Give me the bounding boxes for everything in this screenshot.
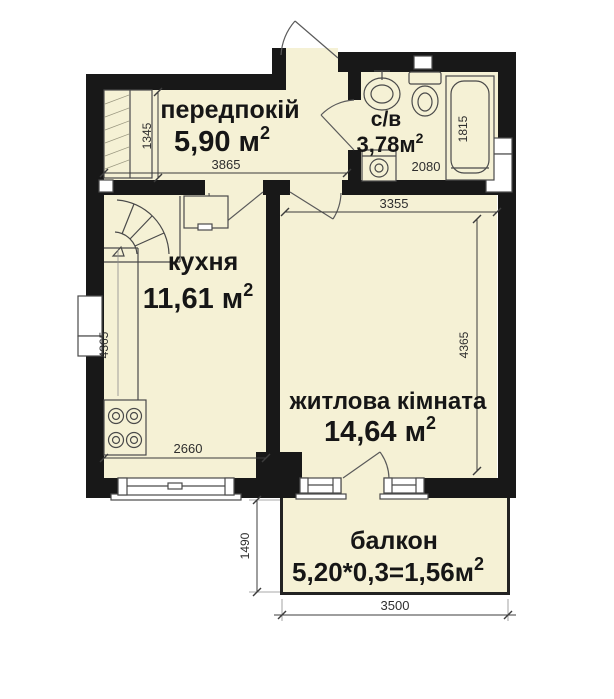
closet-depth-dim: 1345 xyxy=(140,122,154,149)
bathroom-width-dim: 2080 xyxy=(412,159,441,174)
wall-bottom-middle xyxy=(232,478,302,498)
wall-entry-bump xyxy=(272,48,286,90)
kitchen-width-dim: 2660 xyxy=(174,441,203,456)
balcony-depth-dim: 1490 xyxy=(238,532,252,559)
balcony-label: балкон xyxy=(350,527,438,555)
bathroom-area: 3,78м2 xyxy=(357,130,424,157)
kitchen-door-opening xyxy=(205,180,263,195)
vent-marker-top xyxy=(414,56,432,69)
hallway-area: 5,90 м2 xyxy=(174,123,270,158)
wall-bathroom-left-upper xyxy=(348,72,361,100)
wall-interior-c xyxy=(342,180,498,195)
entry-door-opening xyxy=(286,48,338,64)
floor-plan: передпокій 5,90 м2 3865 1345 с/в 3,78м2 … xyxy=(0,0,614,699)
duct-left-upper xyxy=(78,296,102,336)
bathroom-depth-dim: 1815 xyxy=(456,115,470,142)
wall-left xyxy=(86,74,104,498)
wall-marker-left xyxy=(99,180,113,192)
living-window-right xyxy=(380,478,428,499)
kitchen-area: 11,61 м2 xyxy=(143,280,254,315)
wall-divider-kitchen-living xyxy=(266,180,280,455)
wall-right xyxy=(498,52,516,498)
balcony-wall-left xyxy=(280,498,283,595)
bathtub xyxy=(446,76,494,180)
living-width-dim: 3355 xyxy=(380,196,409,211)
wall-bottom-right xyxy=(424,478,516,498)
hallway-width-dim: 3865 xyxy=(212,157,241,172)
balcony-wall-right xyxy=(507,498,510,595)
balcony-door-opening xyxy=(341,478,384,498)
living-door-opening xyxy=(290,180,342,195)
stove xyxy=(104,400,146,455)
living-window-left xyxy=(296,478,346,499)
living-height-dim: 4365 xyxy=(457,331,471,358)
wall-top-left xyxy=(86,74,286,90)
living-room-area: 14,64 м2 xyxy=(324,413,436,448)
kitchen-window xyxy=(111,478,241,500)
dim-balcony-depth xyxy=(249,496,280,596)
kitchen-height-dim: 4365 xyxy=(97,331,111,358)
kitchen-label: кухня xyxy=(168,248,238,276)
balcony-width-dim: 3500 xyxy=(381,598,410,613)
kitchen-sink-unit xyxy=(184,196,228,230)
balcony-wall-bottom xyxy=(280,592,510,595)
hallway-label: передпокій xyxy=(160,96,299,124)
bathroom-label: с/в xyxy=(371,108,402,131)
balcony-area-formula: 5,20*0,3=1,56м2 xyxy=(292,554,484,587)
living-room-label: житлова кімната xyxy=(289,388,487,415)
wall-bottom-middle-block xyxy=(256,452,302,480)
